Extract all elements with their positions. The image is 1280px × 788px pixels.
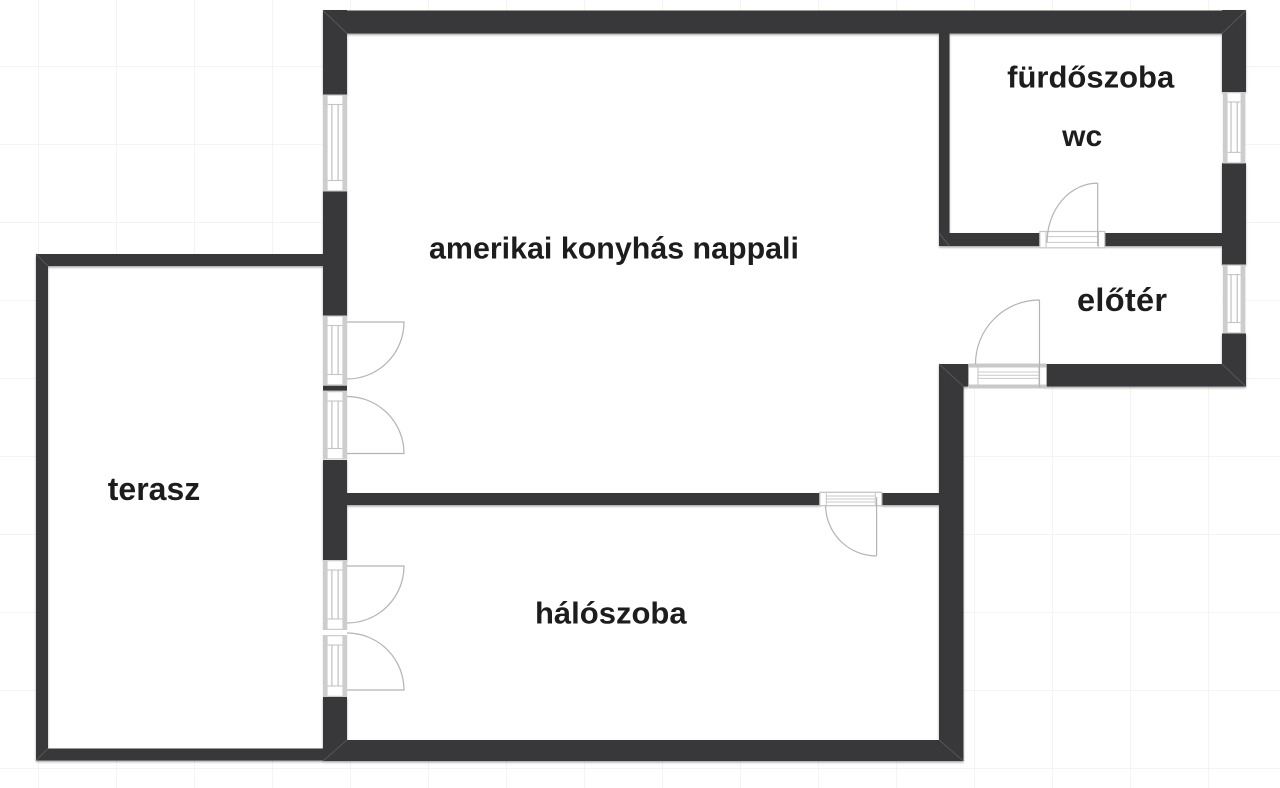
svg-text:terasz: terasz	[108, 471, 201, 507]
svg-text:előtér: előtér	[1077, 282, 1167, 318]
svg-text:hálószoba: hálószoba	[535, 596, 687, 631]
svg-text:fürdőszoba: fürdőszoba	[1007, 59, 1175, 94]
svg-text:amerikai konyhás nappali: amerikai konyhás nappali	[429, 232, 799, 266]
svg-text:wc: wc	[1061, 120, 1102, 153]
